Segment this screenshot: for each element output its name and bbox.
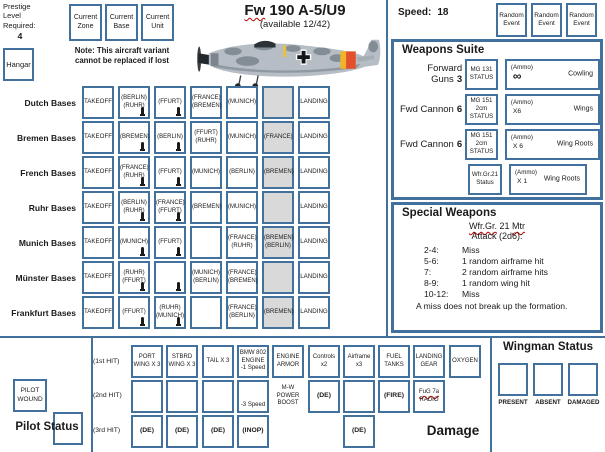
base-row: Dutch BasesTAKEOFF(BERLIN)(RUHR)(FFURT)(… <box>0 85 386 120</box>
track-box[interactable]: (BREMEN) <box>190 191 222 224</box>
wingman-box-present[interactable] <box>498 363 528 396</box>
track-box[interactable]: (BERLIN)(RUHR) <box>118 191 150 224</box>
prestige-level: Prestige Level Required: 4 <box>3 2 67 42</box>
bomb-icon <box>177 282 180 290</box>
pilot-wound-label: PILOT WOUND <box>17 387 42 404</box>
vertical-divider-main <box>386 0 388 337</box>
track-box[interactable]: (RUHR)(MUNICH) <box>154 296 186 329</box>
weapon-row: Wfr.Gr.21Status(Ammo)X 1Wing Roots <box>394 162 600 196</box>
weapon-label: Fwd Cannon6 <box>394 139 465 150</box>
special-weapons-title: Special Weapons <box>402 207 600 219</box>
attack-table-row: 8-9:1 random wing hit <box>424 278 600 289</box>
bomb-icon <box>141 107 144 115</box>
base-row-label: Dutch Bases <box>0 98 78 108</box>
damage-airframe-hit3[interactable]: (DE) <box>343 415 375 448</box>
landing-box[interactable]: LANDING <box>298 121 330 154</box>
track-box[interactable]: (BREMEN) <box>262 296 294 329</box>
landing-box[interactable]: LANDING <box>298 156 330 189</box>
damage-port-wing-hit1[interactable]: PORTWING X 3 <box>131 345 163 378</box>
base-row-label: French Bases <box>0 168 78 178</box>
track-box[interactable]: (FFURT) <box>154 86 186 119</box>
wingman-state-present: PRESENT <box>498 363 529 406</box>
track-box[interactable]: (FRANCE) <box>262 121 294 154</box>
bomb-icon <box>141 177 144 185</box>
attack-footnote: A miss does not break up the formation. <box>416 301 600 311</box>
weapon-label: Forward Guns3 <box>394 63 465 85</box>
track-box[interactable]: (MUNICH) <box>190 156 222 189</box>
base-row-label: Bremen Bases <box>0 133 78 143</box>
weapons-rows: Forward Guns3MG 131STATUS(Ammo)∞CowlingF… <box>394 57 600 196</box>
weapon-row: Fwd Cannon6MG 1512cmSTATUS(Ammo)X 6Wing … <box>394 127 600 161</box>
track-box[interactable]: (MUNICH) <box>118 226 150 259</box>
current-unit-box[interactable]: Current Unit <box>141 4 174 41</box>
damage-airframe-hit1[interactable]: Airframex3 <box>343 345 375 378</box>
landing-box[interactable]: LANDING <box>298 261 330 294</box>
bomb-icon <box>141 142 144 150</box>
landing-box[interactable]: LANDING <box>298 296 330 329</box>
wingman-label: PRESENT <box>498 399 529 406</box>
wingman-status-title: Wingman Status <box>492 341 604 353</box>
track-box[interactable]: (MUNICH) <box>226 191 258 224</box>
weapon-row: Forward Guns3MG 131STATUS(Ammo)∞Cowling <box>394 57 600 91</box>
speed: Speed:18 <box>398 7 454 18</box>
weapons-suite-title: Weapons Suite <box>402 44 600 56</box>
prestige-value: 4 <box>3 31 37 42</box>
current-zone-box[interactable]: Current Zone <box>69 4 102 41</box>
damage-oxygen-hit1[interactable]: OXYGEN <box>449 345 481 378</box>
damage-fuel-tanks-hit2[interactable]: (FIRE) <box>378 380 410 413</box>
damage-tail-hit3[interactable]: (DE) <box>202 415 234 448</box>
weapons-suite-panel: Weapons Suite Forward Guns3MG 131STATUS(… <box>391 39 603 200</box>
damage-fuel-tanks-hit1[interactable]: FUELTANKS <box>378 345 410 378</box>
track-box[interactable]: (FRANCE)(FFURT) <box>154 191 186 224</box>
wingman-status-section: Wingman Status PRESENTABSENTDAMAGED <box>492 341 604 406</box>
bomb-icon <box>141 212 144 220</box>
weapon-ammo-box[interactable]: (Ammo)∞Cowling <box>505 59 600 90</box>
track-box[interactable] <box>262 261 294 294</box>
damage-port-wing-hit3[interactable]: (DE) <box>131 415 163 448</box>
track-box[interactable]: (FFURT) <box>154 226 186 259</box>
track-box[interactable]: (BREMEN)(BERLIN) <box>262 226 294 259</box>
track-box[interactable] <box>190 296 222 329</box>
base-row: French BasesTAKEOFF(FRANCE)(RUHR)(FFURT)… <box>0 155 386 190</box>
attack-table-row: 2-4:Miss <box>424 245 600 256</box>
track-box[interactable]: (BREMEN) <box>118 121 150 154</box>
random-event-boxes: Random EventRandom EventRandom Event <box>496 3 597 37</box>
current-base-box[interactable]: Current Base <box>105 4 138 41</box>
base-row: Frankfurt BasesTAKEOFF(FFURT)(RUHR)(MUNI… <box>0 295 386 330</box>
wingman-label: DAMAGED <box>568 399 599 406</box>
base-row-label: Ruhr Bases <box>0 203 78 213</box>
attack-label: Attack (2d6): <box>394 231 600 241</box>
special-weapons-panel: Special Weapons Wfr.Gr. 21 Mtr Attack (2… <box>391 202 603 333</box>
pilot-status-title: Pilot Status <box>6 421 88 433</box>
track-box[interactable]: (FRANCE)(BREMEN) <box>226 261 258 294</box>
damage-engine-armor-hit2: M-WPOWERBOOST <box>272 380 304 413</box>
track-box[interactable]: (FFURT) <box>154 156 186 189</box>
landing-box[interactable]: LANDING <box>298 86 330 119</box>
landing-box[interactable]: LANDING <box>298 226 330 259</box>
track-box[interactable]: (BERLIN)(RUHR) <box>118 86 150 119</box>
takeoff-box[interactable]: TAKEOFF <box>82 156 114 189</box>
track-box[interactable]: (FFURT)(RUHR) <box>190 121 222 154</box>
availability: (available 12/42) <box>205 19 385 30</box>
track-box[interactable]: (MUNICH)(BERLIN) <box>190 261 222 294</box>
weapon-row: Fwd Cannon6MG 1512cmSTATUS(Ammo)X6Wings <box>394 92 600 126</box>
weapon-status-box[interactable]: Wfr.Gr.21Status <box>468 164 502 195</box>
damage-engine-armor-hit1[interactable]: ENGINEARMOR <box>272 345 304 378</box>
weapon-status-box[interactable]: MG 1512cmSTATUS <box>465 94 498 125</box>
bomb-icon <box>177 177 180 185</box>
bomb-icon <box>141 282 144 290</box>
track-box[interactable]: (BREMEN) <box>262 156 294 189</box>
track-box[interactable]: (MUNICH) <box>226 86 258 119</box>
damage-section-label: Damage <box>408 423 498 438</box>
random-event-box-2[interactable]: Random Event <box>531 3 562 37</box>
speed-value: 18 <box>437 7 448 18</box>
bomb-icon <box>177 247 180 255</box>
weapon-status-box[interactable]: MG 1512cmSTATUS <box>465 129 498 160</box>
damage-engine-hit2[interactable]: -3 Speed <box>237 380 269 413</box>
aircraft-image <box>191 33 391 91</box>
takeoff-box[interactable]: TAKEOFF <box>82 86 114 119</box>
takeoff-box[interactable]: TAKEOFF <box>82 226 114 259</box>
wingman-states: PRESENTABSENTDAMAGED <box>492 363 604 406</box>
track-box[interactable]: (FRANCE)(BREMEN) <box>190 86 222 119</box>
base-row: Ruhr BasesTAKEOFF(BERLIN)(RUHR)(FRANCE)(… <box>0 190 386 225</box>
aircraft-title: Fw 190 A-5/U9 <box>205 2 385 19</box>
hangar-label: Hangar <box>6 60 31 69</box>
base-row-label: Münster Bases <box>0 273 78 283</box>
random-event-box-3[interactable]: Random Event <box>566 3 597 37</box>
weapon-ammo-box[interactable]: (Ammo)X 6Wing Roots <box>505 129 600 160</box>
attack-table-row: 7:2 random airframe hits <box>424 267 600 278</box>
random-event-box-1[interactable]: Random Event <box>496 3 527 37</box>
track-box[interactable]: (MUNICH) <box>226 121 258 154</box>
wingman-state-damaged: DAMAGED <box>568 363 599 406</box>
track-box[interactable]: (FRANCE)(BERLIN) <box>226 296 258 329</box>
damage-landing-gear-hit2[interactable]: FuG 7aRADIO <box>413 380 445 413</box>
base-row: Munich BasesTAKEOFF(MUNICH)(FFURT)(FRANC… <box>0 225 386 260</box>
pilot-wound-box[interactable]: PILOT WOUND <box>13 379 47 412</box>
weapon-ammo-box[interactable]: (Ammo)X 1Wing Roots <box>509 164 587 195</box>
takeoff-box[interactable]: TAKEOFF <box>82 261 114 294</box>
damage-port-wing-hit2[interactable] <box>131 380 163 413</box>
damage-airframe-hit2[interactable] <box>343 380 375 413</box>
damage-stbrd-wing-hit3[interactable]: (DE) <box>166 415 198 448</box>
weapon-label <box>394 174 468 185</box>
base-row: Münster BasesTAKEOFF(RUHR)(FFURT)(MUNICH… <box>0 260 386 295</box>
track-box[interactable]: (RUHR)(FFURT) <box>118 261 150 294</box>
track-box[interactable] <box>262 86 294 119</box>
hit-row-label-3: (3rd HIT) <box>93 427 133 434</box>
bomb-icon <box>141 247 144 255</box>
aircraft-card: Prestige Level Required: 4 Current ZoneC… <box>0 0 605 452</box>
bomb-icon <box>141 317 144 325</box>
hit-row-label-2: (2nd HIT) <box>93 392 133 399</box>
bomb-icon <box>177 212 180 220</box>
base-row: Bremen BasesTAKEOFF(BREMEN)(BERLIN)(FFUR… <box>0 120 386 155</box>
damage-engine-hit1[interactable]: BMW 802ENGINE-1 Speed <box>237 345 269 378</box>
track-box[interactable] <box>262 191 294 224</box>
takeoff-box[interactable]: TAKEOFF <box>82 121 114 154</box>
takeoff-box[interactable]: TAKEOFF <box>82 191 114 224</box>
wingman-state-absent: ABSENT <box>533 363 564 406</box>
weapon-label: Fwd Cannon6 <box>394 104 465 115</box>
special-weapon-name: Wfr.Gr. 21 Mtr <box>394 221 600 231</box>
damage-tail-hit1[interactable]: TAIL X 3 <box>202 345 234 378</box>
attack-table-row: 10-12:Miss <box>424 289 600 300</box>
track-box[interactable]: (FFURT) <box>118 296 150 329</box>
hit-row-label-1: (1st HIT) <box>93 358 133 365</box>
base-tracks: Dutch BasesTAKEOFF(BERLIN)(RUHR)(FFURT)(… <box>0 85 386 330</box>
track-box[interactable]: (BERLIN) <box>226 156 258 189</box>
weapon-ammo-box[interactable]: (Ammo)X6Wings <box>505 94 600 125</box>
hangar-box[interactable]: Hangar <box>3 48 34 81</box>
attack-table-row: 5-6:1 random airframe hit <box>424 256 600 267</box>
track-box[interactable]: (FRANCE)(RUHR) <box>118 156 150 189</box>
bomb-icon <box>177 317 180 325</box>
damage-controls-hit2[interactable]: (DE) <box>308 380 340 413</box>
speed-label: Speed: <box>398 7 431 18</box>
damage-stbrd-wing-hit2[interactable] <box>166 380 198 413</box>
track-box[interactable] <box>154 261 186 294</box>
wingman-box-damaged[interactable] <box>568 363 598 396</box>
landing-box[interactable]: LANDING <box>298 191 330 224</box>
base-row-label: Frankfurt Bases <box>0 308 78 318</box>
damage-engine-hit3[interactable]: (INOP) <box>237 415 269 448</box>
prestige-label: Prestige Level Required: <box>3 2 67 30</box>
variant-note: Note: This aircraft variant cannot be re… <box>66 46 178 66</box>
damage-tail-hit2[interactable] <box>202 380 234 413</box>
title-block: Fw 190 A-5/U9 (available 12/42) <box>205 2 385 30</box>
damage-stbrd-wing-hit1[interactable]: STBRDWING X 3 <box>166 345 198 378</box>
wingman-label: ABSENT <box>533 399 564 406</box>
current-boxes: Current ZoneCurrent BaseCurrent Unit <box>69 4 174 41</box>
bomb-icon <box>177 107 180 115</box>
track-box[interactable]: (FRANCE)(RUHR) <box>226 226 258 259</box>
track-box[interactable]: (BERLIN) <box>154 121 186 154</box>
weapon-status-box[interactable]: MG 131STATUS <box>465 59 498 90</box>
damage-landing-gear-hit1[interactable]: LANDINGGEAR <box>413 345 445 378</box>
damage-controls-hit1[interactable]: Controlsx2 <box>308 345 340 378</box>
base-row-label: Munich Bases <box>0 238 78 248</box>
wingman-box-absent[interactable] <box>533 363 563 396</box>
track-box[interactable] <box>190 226 222 259</box>
bomb-icon <box>177 142 180 150</box>
attack-table: 2-4:Miss5-6:1 random airframe hit7:2 ran… <box>424 245 600 300</box>
takeoff-box[interactable]: TAKEOFF <box>82 296 114 329</box>
